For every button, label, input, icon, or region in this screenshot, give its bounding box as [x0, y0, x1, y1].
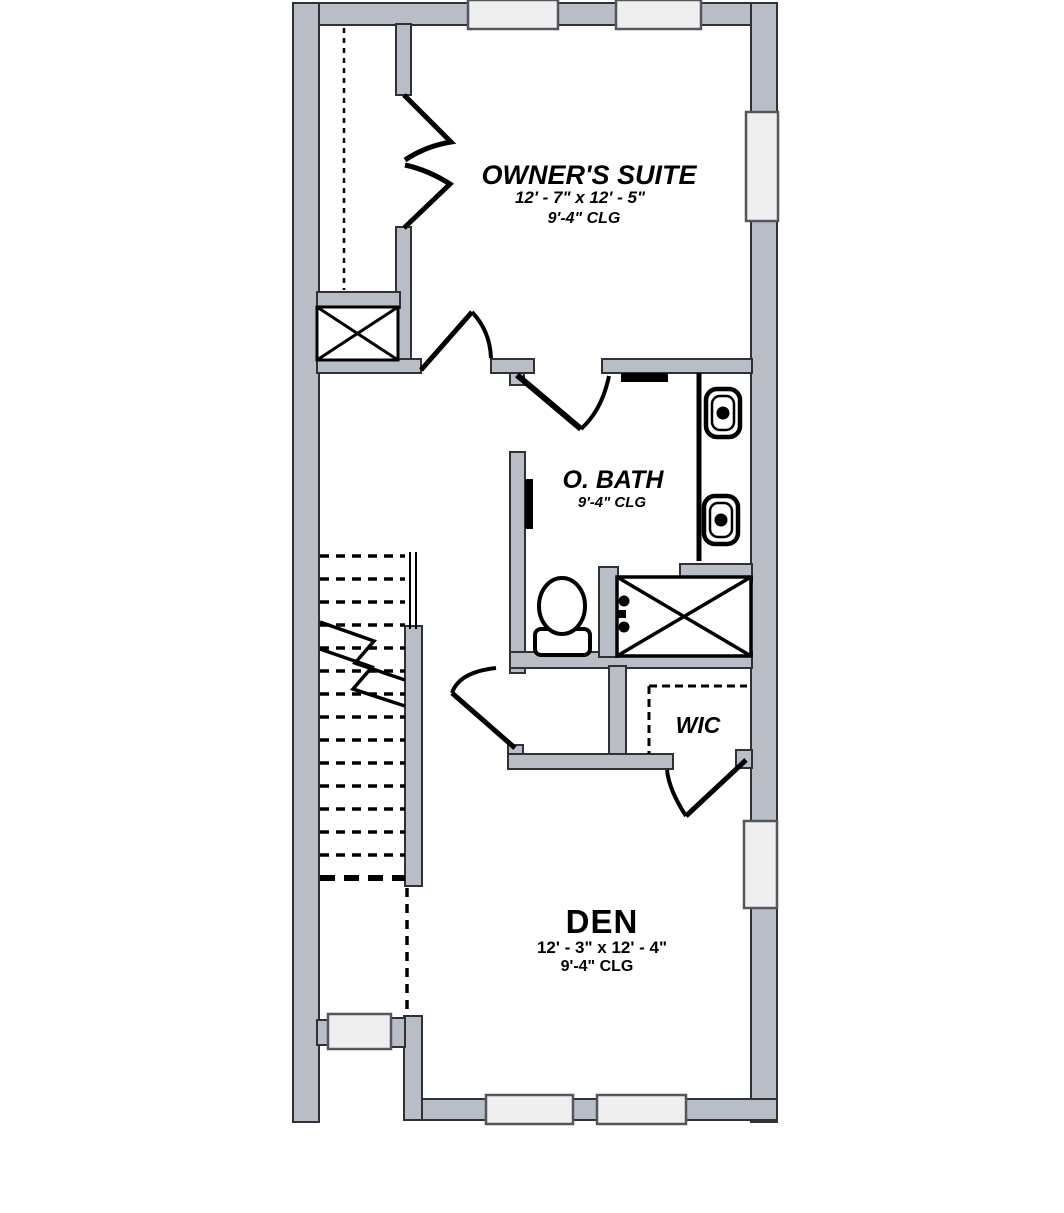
- owners-suite-dimensions: 12' - 7" x 12' - 5": [515, 188, 646, 207]
- stairs: [320, 552, 416, 1014]
- window-bottom-left: [328, 1014, 391, 1049]
- window-top-2: [616, 0, 701, 29]
- floor-plan-canvas: OWNER'S SUITE 12' - 7" x 12' - 5" 9'-4" …: [0, 0, 1064, 1213]
- bath-door-leaf: [517, 375, 581, 429]
- sink-1-drain: [717, 407, 730, 420]
- window-right-upper: [746, 112, 778, 221]
- window-bottom-2: [597, 1095, 686, 1124]
- owners-suite-door-swing: [472, 312, 491, 358]
- sink-2-drain: [715, 514, 728, 527]
- window-right-lower: [744, 821, 777, 908]
- wic-door-swing: [667, 770, 686, 816]
- owners-suite-label: OWNER'S SUITE: [482, 160, 698, 190]
- wall-hall-bottom: [508, 754, 673, 769]
- wic-label: WIC: [676, 712, 721, 738]
- owners-suite-ceiling: 9'-4" CLG: [548, 210, 621, 227]
- den-door-swing: [452, 668, 496, 693]
- window-bottom-1: [486, 1095, 573, 1124]
- window-top-1: [468, 0, 558, 29]
- toilet-bowl: [539, 578, 585, 634]
- wall-owner-strike: [491, 359, 534, 373]
- shower-valve-plate: [616, 610, 626, 618]
- den-door-leaf: [452, 693, 515, 748]
- wall-bath-top: [602, 359, 752, 373]
- wall-bottom: [404, 1099, 777, 1120]
- o-bath-ceiling: 9'-4" CLG: [578, 494, 647, 511]
- bath-fixtures: [525, 373, 751, 656]
- towel-bar: [525, 479, 533, 529]
- wall-wic-divider: [609, 666, 626, 758]
- wic-door-leaf: [686, 760, 746, 816]
- o-bath-label: O. BATH: [563, 466, 665, 494]
- bath-door-swing: [581, 376, 609, 429]
- floor-plan-svg: OWNER'S SUITE 12' - 7" x 12' - 5" 9'-4" …: [0, 0, 1064, 1213]
- shower-valve-bottom: [619, 622, 630, 633]
- wall-left: [293, 3, 319, 1122]
- wall-stair: [405, 626, 422, 886]
- bifold-doors: [404, 95, 451, 228]
- chase-box: [317, 307, 398, 360]
- wall-closet-stub-top: [396, 24, 411, 95]
- shower-valve-top: [619, 596, 630, 607]
- wall-den-left-lower: [404, 1016, 422, 1120]
- wall-shower-left: [599, 567, 618, 657]
- den-ceiling: 9'-4" CLG: [561, 958, 634, 975]
- bath-header-bar: [621, 373, 668, 382]
- den-dimensions: 12' - 3" x 12' - 4": [537, 938, 667, 957]
- den-label: DEN: [566, 903, 639, 940]
- wall-bath-left: [510, 452, 525, 673]
- owners-suite-door-leaf: [421, 312, 472, 370]
